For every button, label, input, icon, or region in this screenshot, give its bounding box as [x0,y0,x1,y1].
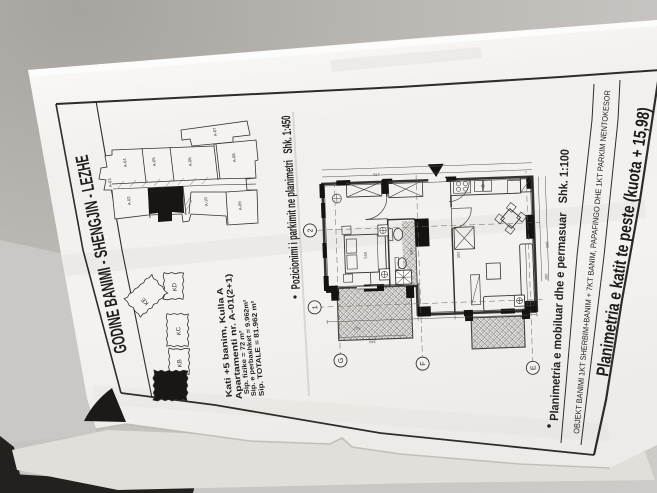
svg-text:260: 260 [544,241,549,249]
svg-text:1: 1 [312,305,319,309]
svg-text:240: 240 [368,339,376,344]
svg-text:E: E [530,365,537,370]
svg-text:547: 547 [353,326,361,331]
svg-text:KB: KB [177,359,184,368]
svg-text:G: G [338,358,345,364]
svg-text:175: 175 [372,172,380,177]
svg-text:KC: KC [176,326,183,336]
svg-text:F: F [420,361,427,366]
svg-text:2: 2 [307,228,314,232]
svg-text:392: 392 [456,251,461,259]
svg-text:KD: KD [172,282,179,292]
svg-text:400: 400 [544,273,549,281]
svg-text:550: 550 [363,251,368,259]
svg-text:940: 940 [409,247,414,255]
